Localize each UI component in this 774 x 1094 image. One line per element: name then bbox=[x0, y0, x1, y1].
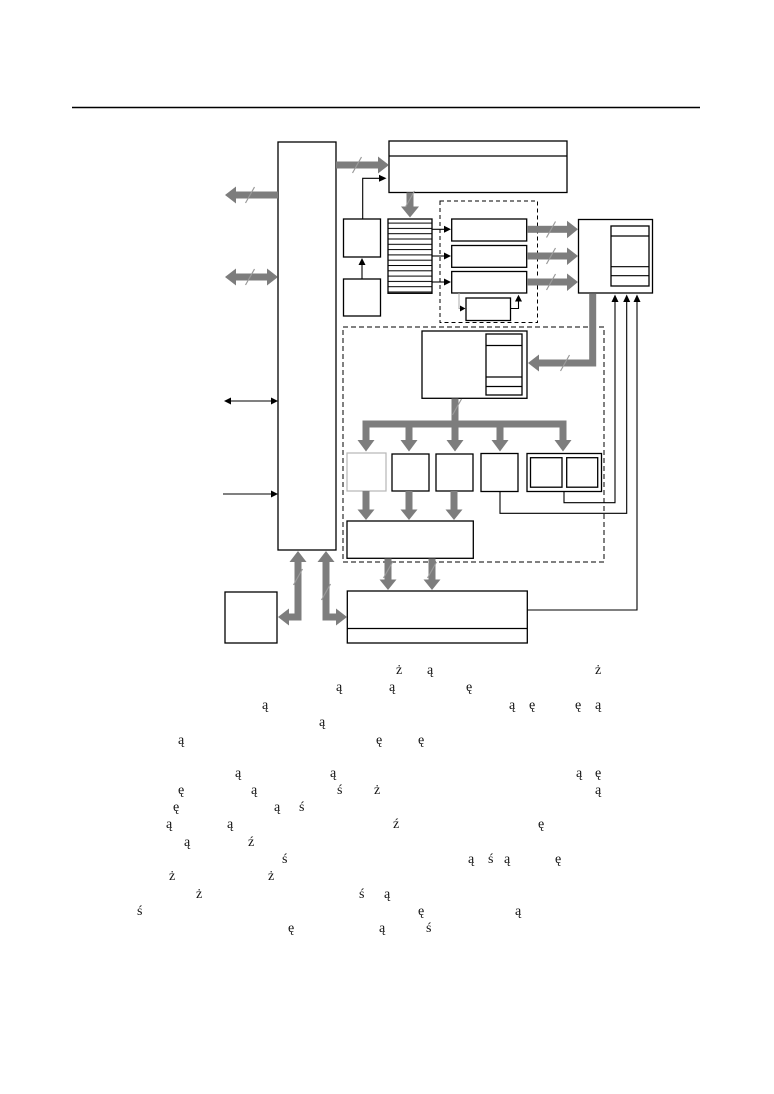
bus-o-head-left bbox=[278, 609, 289, 626]
bus-i-distribution bbox=[366, 399, 563, 442]
stray-glyph: ę bbox=[288, 922, 294, 936]
thin-up-arrowheads bbox=[612, 295, 641, 303]
bus-c-head-right bbox=[267, 269, 278, 286]
document-page: żążąąęąąęęąąąęęąąąęęąśżąęąśąąźęąźśąśąężż… bbox=[0, 0, 774, 1094]
stray-glyph: ę bbox=[595, 767, 601, 781]
bus-k-shaft bbox=[406, 491, 413, 510]
bus-f-head bbox=[567, 248, 578, 266]
top-wide-box bbox=[389, 141, 567, 193]
stray-glyph: ą bbox=[227, 818, 233, 832]
right-register-inner-box bbox=[611, 226, 649, 286]
feedback-small-box bbox=[466, 298, 511, 321]
stray-glyph: ą bbox=[166, 818, 172, 832]
stray-glyph: ę bbox=[178, 784, 184, 798]
bus-l-head bbox=[446, 510, 463, 521]
bus-p-head-up bbox=[318, 551, 335, 562]
arrowhead-left-icon bbox=[224, 398, 231, 405]
bus-n-head bbox=[424, 580, 441, 591]
bus-o-elbow bbox=[289, 562, 298, 618]
elbow-to-top-box bbox=[363, 178, 379, 219]
stray-glyph: ż bbox=[374, 784, 380, 798]
bus-i-head-3 bbox=[447, 440, 464, 452]
stray-glyph: ą bbox=[184, 836, 190, 850]
stray-glyph: ś bbox=[426, 922, 431, 936]
unit-box-1-faded bbox=[347, 453, 386, 491]
stray-glyph: ż bbox=[196, 888, 202, 902]
bus-j-shaft bbox=[363, 491, 370, 510]
bus-i-head-4 bbox=[492, 440, 509, 452]
unit-box-5b bbox=[567, 458, 598, 488]
arrowhead-right-icon bbox=[460, 306, 466, 312]
stray-glyph: ę bbox=[538, 818, 544, 832]
tall-left-bus-box bbox=[278, 142, 336, 550]
bus-b-shaft bbox=[236, 192, 278, 199]
small-upper-box bbox=[344, 219, 381, 257]
arrowhead-right-icon bbox=[271, 398, 278, 405]
bus-p-head-right bbox=[336, 609, 347, 626]
stray-glyph: ś bbox=[488, 853, 493, 867]
stray-glyph: ź bbox=[248, 836, 254, 850]
bus-e-shaft bbox=[527, 226, 568, 233]
bottom-wide-box bbox=[347, 591, 527, 643]
bus-i-head-5 bbox=[555, 440, 572, 452]
stray-glyph: ś bbox=[282, 853, 287, 867]
stray-glyph: ę bbox=[418, 905, 424, 919]
stray-glyph: ż bbox=[268, 870, 274, 884]
stray-glyph: ż bbox=[396, 664, 402, 678]
stray-glyph: ś bbox=[359, 888, 364, 902]
arrowhead-up-icon bbox=[634, 295, 641, 303]
bus-e-head bbox=[567, 221, 578, 239]
stacked-box-3 bbox=[452, 272, 527, 294]
stray-glyph: ą bbox=[515, 905, 521, 919]
arrowhead-up-icon bbox=[359, 258, 366, 265]
arrowhead-up-icon bbox=[623, 295, 630, 303]
arrowhead-up-icon bbox=[612, 295, 619, 303]
stray-glyph: ą bbox=[336, 681, 342, 695]
arrowhead-right-icon bbox=[271, 491, 278, 498]
stray-glyph: ź bbox=[393, 818, 399, 832]
stray-glyph: ę bbox=[376, 734, 382, 748]
stray-glyph: ą bbox=[235, 767, 241, 781]
bus-b-head bbox=[225, 187, 236, 204]
stray-glyph: ą bbox=[384, 888, 390, 902]
block-diagram-figure bbox=[0, 0, 774, 1094]
stray-glyph: ą bbox=[595, 784, 601, 798]
stray-glyph: ą bbox=[251, 784, 257, 798]
stray-glyph: ą bbox=[330, 767, 336, 781]
stray-glyph: ę bbox=[529, 699, 535, 713]
bus-k-head bbox=[401, 510, 418, 521]
bus-h-head bbox=[528, 355, 539, 372]
stray-glyph: ż bbox=[595, 664, 601, 678]
stray-glyph: ę bbox=[418, 734, 424, 748]
stacked-box-1 bbox=[452, 219, 527, 241]
unit-box-5a bbox=[531, 458, 563, 488]
arrowhead-right-icon bbox=[444, 226, 451, 233]
bus-l-shaft bbox=[451, 491, 458, 510]
arrowhead-right-icon bbox=[379, 175, 387, 182]
bus-m-head bbox=[380, 580, 397, 591]
stray-glyph: ą bbox=[576, 767, 582, 781]
bus-j-head bbox=[358, 510, 375, 521]
arrowhead-up-icon bbox=[515, 295, 522, 302]
stray-glyph: ż bbox=[169, 870, 175, 884]
stray-glyph: ś bbox=[337, 784, 342, 798]
stray-glyph: ą bbox=[178, 734, 184, 748]
stacked-box-2 bbox=[452, 246, 527, 268]
stray-glyph: ą bbox=[389, 681, 395, 695]
stray-glyph: ą bbox=[427, 664, 433, 678]
bus-f-shaft bbox=[527, 253, 568, 260]
stray-glyph: ą bbox=[319, 716, 325, 730]
feedback-right-elbow bbox=[511, 301, 519, 309]
unit-box-4 bbox=[481, 454, 518, 492]
stray-glyph: ę bbox=[575, 699, 581, 713]
stray-glyph: ą bbox=[274, 801, 280, 815]
stray-glyph: ś bbox=[299, 801, 304, 815]
bus-i-head-2 bbox=[401, 440, 418, 452]
stray-glyph: ą bbox=[468, 853, 474, 867]
bus-g-shaft bbox=[527, 279, 568, 286]
diagram-boxes bbox=[225, 141, 653, 643]
bus-d-head bbox=[401, 207, 419, 218]
collector-wide-box bbox=[347, 521, 473, 558]
bus-o-head-up bbox=[290, 551, 307, 562]
bottom-left-box bbox=[225, 592, 277, 643]
bus-c-head-left bbox=[225, 269, 236, 286]
bus-a-head bbox=[378, 157, 389, 174]
fifo-stack-box bbox=[388, 219, 432, 293]
bus-g-head bbox=[567, 274, 578, 292]
unit-box-2 bbox=[392, 454, 429, 491]
stray-glyph: ą bbox=[262, 699, 268, 713]
bus-h-elbow bbox=[539, 294, 593, 363]
stray-glyph: ą bbox=[504, 853, 510, 867]
stray-glyph: ę bbox=[466, 681, 472, 695]
arrowhead-right-icon bbox=[444, 253, 451, 260]
stray-glyph: ą bbox=[509, 699, 515, 713]
arrowhead-right-icon bbox=[444, 279, 451, 286]
stray-glyph: ę bbox=[173, 801, 179, 815]
bus-i-head-1 bbox=[358, 440, 375, 452]
stray-glyph: ą bbox=[595, 699, 601, 713]
central-inner-box bbox=[486, 334, 522, 395]
unit-box-3 bbox=[436, 454, 473, 491]
stray-glyph: ą bbox=[379, 922, 385, 936]
stray-glyph: ę bbox=[555, 853, 561, 867]
stray-glyph: ś bbox=[137, 905, 142, 919]
small-lower-box bbox=[344, 279, 381, 316]
